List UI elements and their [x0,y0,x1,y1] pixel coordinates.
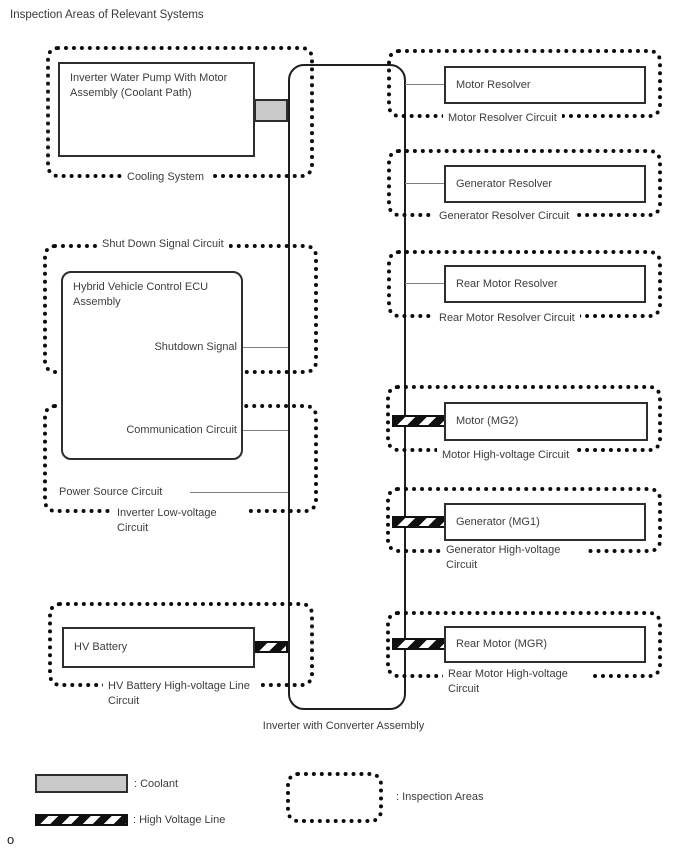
rear-motor-resolver-box: Rear Motor Resolver [444,265,646,303]
motor-resolver-circuit-label: Motor Resolver Circuit [443,111,562,126]
coolant-swatch [35,774,128,793]
rear-motor-mgr-box: Rear Motor (MGR) [444,626,646,663]
water-pump-box: Inverter Water Pump With Motor Assembly … [58,62,255,157]
communication-circuit-text: Communication Circuit [100,423,237,438]
inspection-areas-legend-label: : Inspection Areas [396,790,483,805]
footnote-text: o [7,831,14,849]
page-title: Inspection Areas of Relevant Systems [10,8,204,24]
hv-battery-label: HV Battery [74,640,127,655]
generator-hv-circuit-label: Generator High-voltage Circuit [441,543,586,573]
rear-motor-mgr-label: Rear Motor (MGR) [456,637,547,652]
motor-resolver-label: Motor Resolver [456,78,531,93]
rear-motor-resolver-label: Rear Motor Resolver [456,277,557,292]
water-pump-label: Inverter Water Pump With Motor Assembly … [70,72,227,99]
rear-motor-resolver-circuit-label: Rear Motor Resolver Circuit [434,311,580,326]
cooling-system-area-label: Cooling System [122,170,209,185]
generator-resolver-label: Generator Resolver [456,177,552,192]
motor-resolver-box: Motor Resolver [444,66,646,104]
inspection-area-swatch [286,772,383,823]
low-voltage-circuit-area-label: Inverter Low-voltage Circuit [112,506,248,536]
high-voltage-swatch [35,814,128,826]
diagram-canvas: Inspection Areas of Relevant Systems Inv… [0,0,688,852]
generator-resolver-circuit-label: Generator Resolver Circuit [434,209,574,224]
rear-motor-hv-circuit-label: Rear Motor High-voltage Circuit [443,667,593,697]
motor-mg2-box: Motor (MG2) [444,402,648,441]
hv-control-ecu-label: Hybrid Vehicle Control ECU Assembly [73,281,208,308]
inverter-converter-bus-label: Inverter with Converter Assembly [246,719,441,734]
shutdown-circuit-area-label: Shut Down Signal Circuit [97,237,229,252]
hv-battery-box: HV Battery [62,627,255,668]
generator-mg1-box: Generator (MG1) [444,503,646,541]
generator-resolver-box: Generator Resolver [444,165,646,203]
motor-hv-circuit-label: Motor High-voltage Circuit [437,448,574,463]
hv-battery-circuit-area-label: HV Battery High-voltage Line Circuit [103,679,261,709]
high-voltage-legend-label: : High Voltage Line [133,813,225,828]
power-source-circuit-text: Power Source Circuit [59,485,162,500]
coolant-legend-label: : Coolant [134,777,178,792]
generator-mg1-label: Generator (MG1) [456,515,540,530]
motor-mg2-label: Motor (MG2) [456,414,518,429]
shutdown-signal-text: Shutdown Signal [100,340,237,355]
